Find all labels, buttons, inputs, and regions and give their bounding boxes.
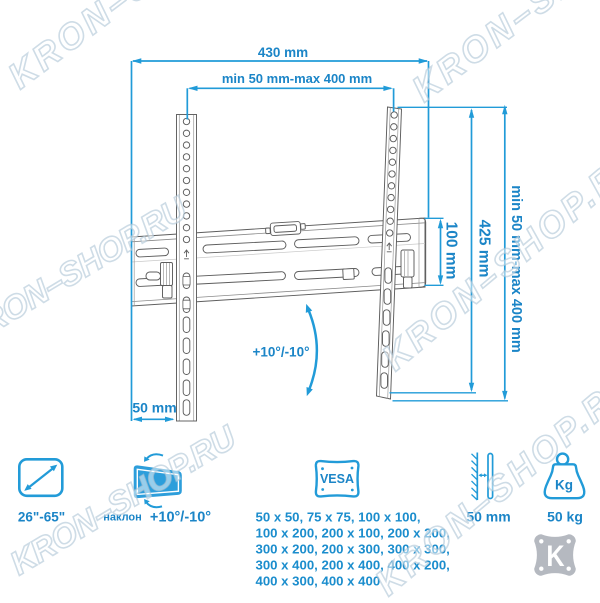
svg-text:K: K [546, 539, 564, 573]
svg-text:+10°/-10°: +10°/-10° [150, 510, 211, 526]
svg-text:VESA: VESA [320, 472, 354, 486]
svg-text:430 mm: 430 mm [258, 45, 308, 60]
svg-text:50 kg: 50 kg [547, 509, 583, 525]
svg-text:Kg: Kg [555, 478, 573, 493]
svg-text:100 mm: 100 mm [443, 222, 460, 280]
svg-text:+10°/-10°: +10°/-10° [253, 345, 310, 360]
svg-text:50 mm: 50 mm [132, 400, 176, 416]
svg-text:min 50 mm-max 400 mm: min 50 mm-max 400 mm [222, 71, 372, 86]
svg-text:400 x 300, 400 x 400: 400 x 300, 400 x 400 [256, 573, 381, 588]
svg-text:50 x 50, 75 x 75, 100 x 100,: 50 x 50, 75 x 75, 100 x 100, [256, 509, 421, 524]
